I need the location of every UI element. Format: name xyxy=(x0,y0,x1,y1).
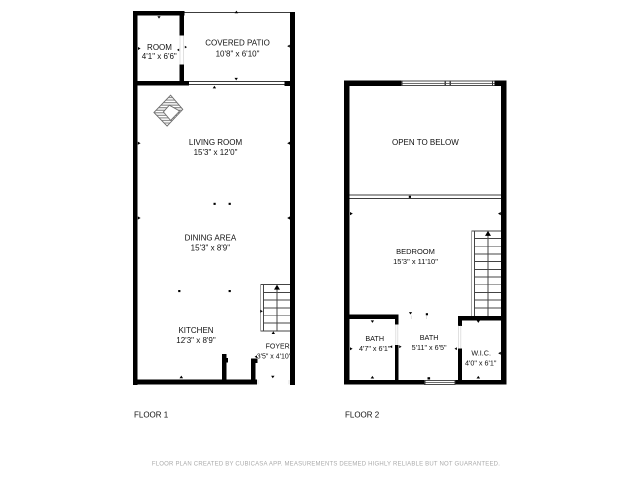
svg-text:4'0" x 6'1": 4'0" x 6'1" xyxy=(465,358,497,367)
svg-text:FLOOR PLAN CREATED BY CUBICASA: FLOOR PLAN CREATED BY CUBICASA APP. MEAS… xyxy=(152,461,500,467)
svg-text:BATH: BATH xyxy=(420,333,439,342)
svg-text:15'3" x 11'10": 15'3" x 11'10" xyxy=(393,257,438,266)
svg-text:4'7" x 6'1": 4'7" x 6'1" xyxy=(359,344,391,353)
svg-text:10'8" x 6'10": 10'8" x 6'10" xyxy=(216,49,260,58)
svg-text:OPEN TO BELOW: OPEN TO BELOW xyxy=(392,138,459,147)
svg-text:W.I.C.: W.I.C. xyxy=(471,349,491,358)
svg-text:12'3" x 8'9": 12'3" x 8'9" xyxy=(176,336,216,345)
svg-text:4'1" x 6'6": 4'1" x 6'6" xyxy=(142,52,177,61)
svg-text:15'3" x 12'0": 15'3" x 12'0" xyxy=(194,148,238,157)
svg-text:BATH: BATH xyxy=(365,334,384,343)
svg-text:COVERED PATIO: COVERED PATIO xyxy=(205,38,270,47)
svg-text:5'11" x 6'5": 5'11" x 6'5" xyxy=(412,343,447,352)
svg-text:FLOOR 1: FLOOR 1 xyxy=(134,410,169,419)
svg-text:BEDROOM: BEDROOM xyxy=(396,247,435,256)
svg-text:15'3" x 8'9": 15'3" x 8'9" xyxy=(191,243,231,252)
svg-text:DINING AREA: DINING AREA xyxy=(185,233,237,242)
svg-text:FOYER: FOYER xyxy=(266,344,290,351)
svg-text:3'5" x 4'10": 3'5" x 4'10" xyxy=(257,354,292,361)
svg-text:KITCHEN: KITCHEN xyxy=(178,326,213,335)
svg-text:FLOOR 2: FLOOR 2 xyxy=(345,410,380,419)
svg-text:ROOM: ROOM xyxy=(147,43,172,52)
svg-text:LIVING ROOM: LIVING ROOM xyxy=(189,138,243,147)
